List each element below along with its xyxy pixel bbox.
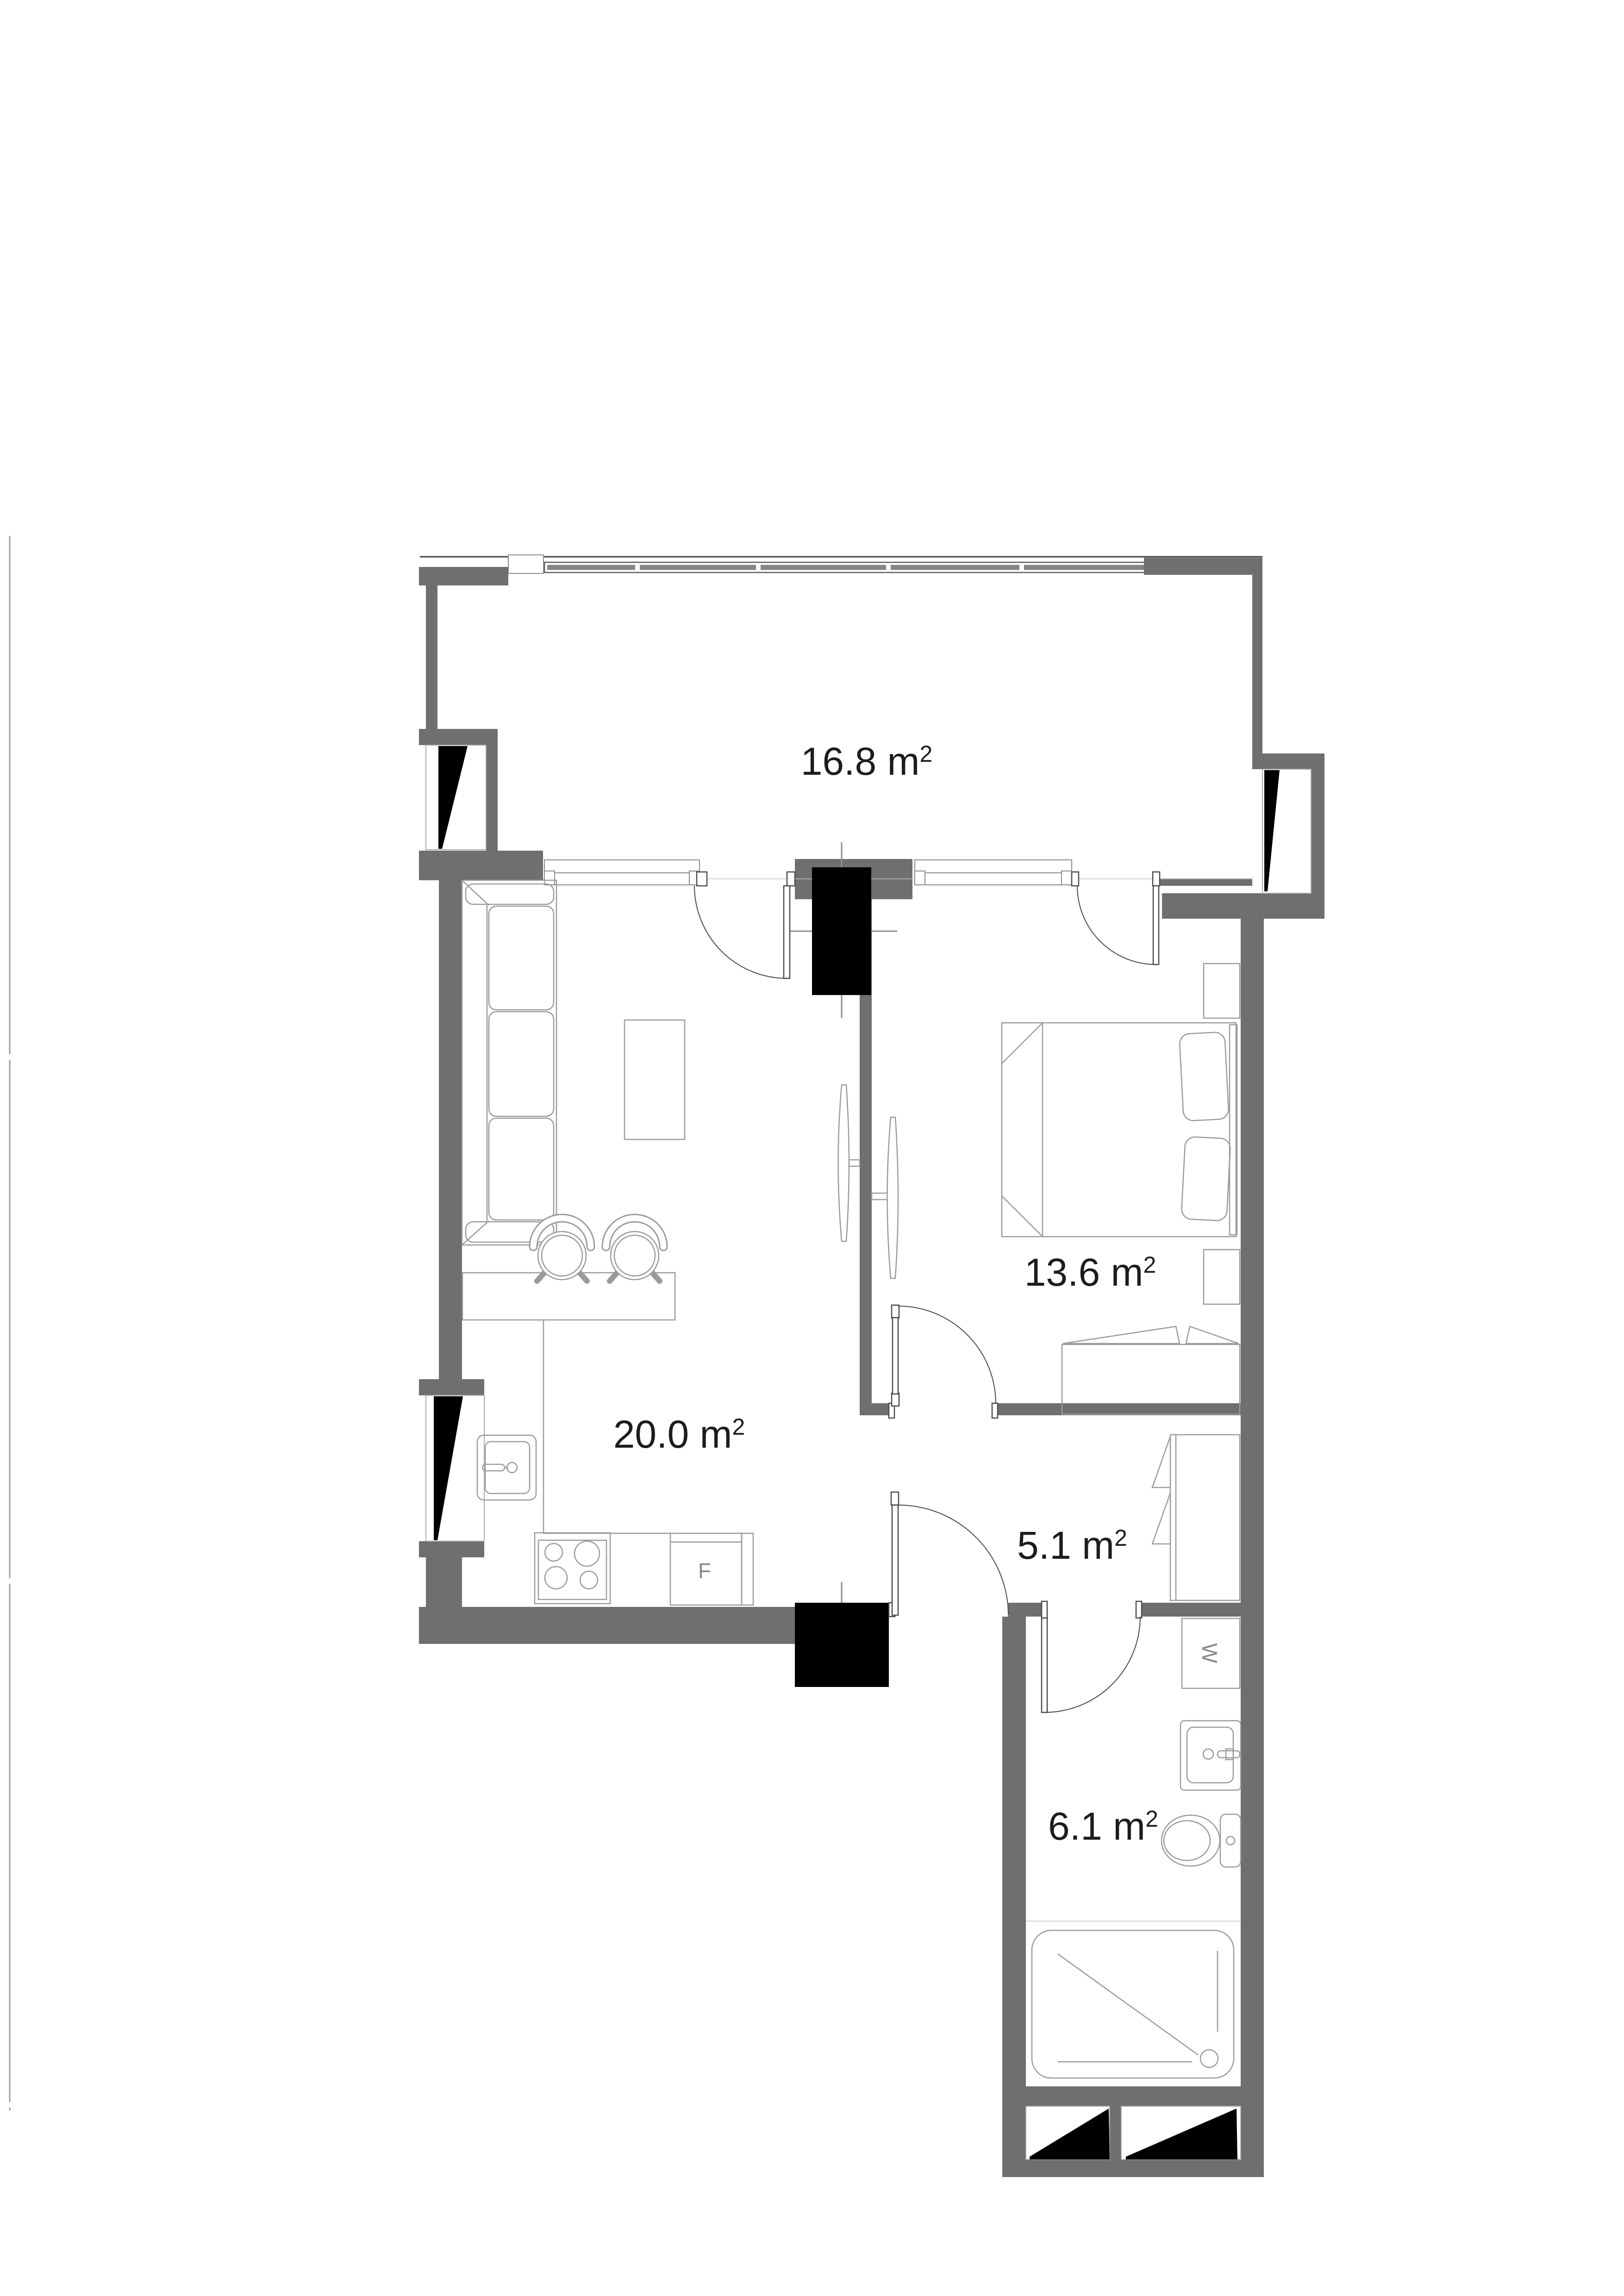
bathtub-outline (1032, 1930, 1234, 2078)
nightstand (1204, 964, 1240, 1018)
wardrobe-door-fold (1063, 1326, 1180, 1344)
tv-bracket (848, 1160, 860, 1166)
balcony-railing (420, 555, 1262, 573)
window-jamb (544, 871, 555, 885)
door-jamb (1072, 872, 1079, 886)
door-bedroom-hallway (889, 1305, 998, 1418)
burner (580, 1571, 598, 1589)
bar-counter (462, 1273, 675, 1320)
tv-living (838, 1085, 860, 1241)
railing-end-post (508, 555, 543, 573)
toilet-bowl (1162, 1815, 1220, 1866)
door-leaf (1153, 886, 1159, 964)
floor-plan-drawing: F W (0, 0, 1624, 2296)
stove (535, 1533, 610, 1604)
stool-leg (652, 1273, 660, 1281)
window-sill (544, 860, 700, 873)
door-jamb (1153, 872, 1160, 886)
sofa-outline (462, 880, 556, 1245)
toilet (1162, 1814, 1241, 1867)
stool-seat (538, 1232, 586, 1280)
bar-stool (533, 1218, 591, 1281)
sink-drain (1203, 1749, 1213, 1759)
door-leaf (784, 886, 790, 978)
door-jamb (1136, 1601, 1142, 1618)
fridge-label: F (698, 1559, 711, 1583)
door-jamb (787, 872, 795, 886)
door-jamb (697, 872, 707, 886)
stool-leg (610, 1273, 617, 1281)
window-frame (915, 873, 1072, 885)
stool-seat (611, 1232, 659, 1280)
kitchen-sink (477, 1435, 536, 1500)
stool-leg (537, 1273, 544, 1281)
window-living (544, 860, 700, 885)
pillow (1179, 1032, 1229, 1121)
door-swing-arc (1044, 1617, 1140, 1712)
window-jamb (1062, 871, 1072, 885)
door-jamb (892, 1305, 899, 1318)
shaft-block (812, 867, 871, 995)
stool-leg (580, 1273, 587, 1281)
door-jamb (891, 1492, 899, 1505)
door-leaf (892, 1505, 898, 1615)
door-swing-arc (694, 886, 787, 978)
sofa-cushion (489, 1118, 554, 1220)
sofa-cushion (489, 1012, 554, 1116)
door-swing-arc (1077, 886, 1156, 964)
cabinet-end-panel (742, 1533, 753, 1605)
sofa (462, 880, 556, 1245)
toilet-flush-button (1226, 1836, 1235, 1845)
nightstand (1204, 1250, 1240, 1304)
washing-machine: W (1182, 1618, 1240, 1688)
wardrobe-door-fold (1186, 1326, 1239, 1344)
bathtub-drain (1200, 2050, 1218, 2067)
floor-plan-page: F W (0, 0, 1624, 2296)
walls (419, 558, 1324, 2177)
coffee-table (625, 1020, 685, 1139)
window-sill (915, 860, 1072, 873)
door-swing-arc (898, 1306, 996, 1404)
toilet-tank (1220, 1814, 1241, 1867)
burner (545, 1543, 562, 1561)
tv-bracket (872, 1193, 888, 1200)
wardrobe-door-fold (1152, 1437, 1170, 1487)
shaft-markers (786, 842, 897, 1687)
wall-segment (419, 558, 1324, 2177)
facade-window-markers (1026, 2106, 1241, 2159)
pillow (1181, 1137, 1230, 1221)
door-entry (889, 1492, 1008, 1617)
door-jamb (892, 1393, 899, 1406)
bathroom-sink (1181, 1721, 1241, 1790)
burner (575, 1541, 600, 1566)
window-bedroom (915, 860, 1072, 885)
bathtub-slope-line (1058, 1954, 1198, 2055)
bed-outline (1002, 1023, 1236, 1237)
sofa-cushion (466, 884, 554, 904)
hallway-wardrobe (1152, 1435, 1240, 1600)
kitchen: F (462, 1218, 753, 1605)
door-swing-arc (898, 1505, 1008, 1615)
bathtub (1032, 1930, 1234, 2078)
door-jamb (992, 1403, 998, 1418)
room-label-bedroom: 13.6 m2 (1024, 1251, 1156, 1294)
sink-drain (507, 1462, 517, 1473)
stove-outline (535, 1533, 610, 1604)
door-bathroom (1042, 1601, 1142, 1712)
door-leaf (893, 1318, 898, 1394)
bed (1002, 1023, 1237, 1237)
door-leaf (1042, 1618, 1047, 1712)
sofa-cushion (489, 906, 554, 1010)
washer-label: W (1198, 1643, 1222, 1663)
bar-stool (606, 1218, 663, 1281)
door-bedroom-balcony (1072, 872, 1160, 964)
window-jamb (915, 871, 925, 885)
bedroom-wardrobe (1062, 1326, 1240, 1414)
bed-fold-corner (1002, 1023, 1043, 1064)
window-frame (544, 873, 700, 885)
sink-tap (1218, 1751, 1240, 1758)
burner (545, 1567, 567, 1589)
room-label-living: 20.0 m2 (613, 1412, 745, 1456)
tv-panel (838, 1085, 849, 1241)
room-label-hallway: 5.1 m2 (1017, 1524, 1127, 1567)
fridge: F (670, 1533, 742, 1605)
room-label-bathroom: 6.1 m2 (1048, 1804, 1158, 1848)
shaft-block (795, 1603, 889, 1687)
wardrobe-door-fold (1152, 1493, 1170, 1544)
tv-bedroom (872, 1117, 898, 1278)
tv-panel (887, 1117, 899, 1278)
door-living-balcony (694, 872, 795, 978)
wardrobe-body (1170, 1435, 1240, 1600)
door-jamb (1042, 1601, 1047, 1618)
bed-fold-corner (1002, 1196, 1043, 1237)
room-label-balcony: 16.8 m2 (801, 740, 933, 783)
